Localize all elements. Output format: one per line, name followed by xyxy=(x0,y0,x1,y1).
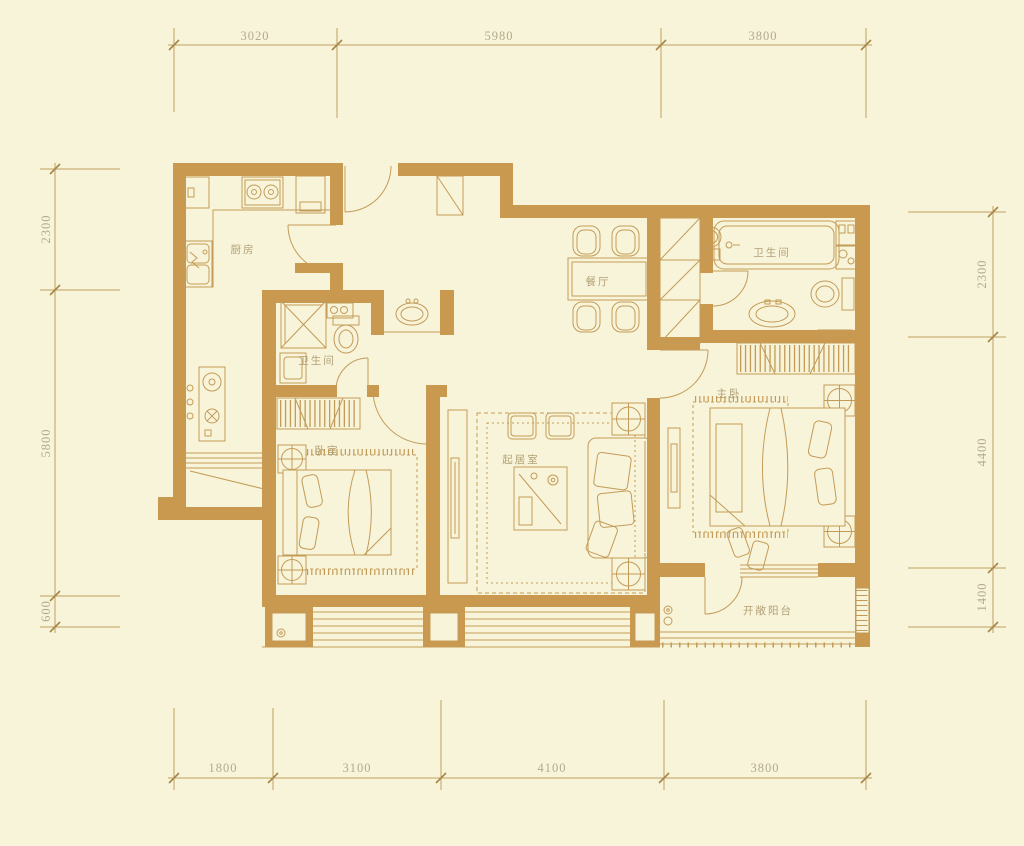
floor-plan-page: 3020 5980 3800 1800 3100 4100 3800 2300 … xyxy=(0,0,1024,846)
dim-right-2: 4400 xyxy=(975,438,989,467)
dim-left-2: 5800 xyxy=(39,429,53,458)
dim-bottom-2: 3100 xyxy=(343,761,372,775)
room-label-living: 起居室 xyxy=(502,453,540,466)
dim-right-3: 1400 xyxy=(975,583,989,612)
balcony-furniture xyxy=(664,606,672,625)
walls-layer xyxy=(158,163,870,647)
bath-master-furniture xyxy=(701,221,856,336)
room-label-master: 主卧 xyxy=(717,387,742,400)
dim-bottom-1: 1800 xyxy=(209,761,238,775)
bedroom-furniture xyxy=(277,398,391,584)
bath-middle-furniture xyxy=(280,176,463,383)
dim-left-3: 600 xyxy=(39,600,53,622)
dim-top-1: 3020 xyxy=(241,29,270,43)
room-label-bath-master: 卫生间 xyxy=(753,246,791,259)
dim-top-3: 3800 xyxy=(749,29,778,43)
dim-bottom-4: 3800 xyxy=(751,761,780,775)
hall-closet xyxy=(660,218,700,343)
room-label-balcony: 开敞阳台 xyxy=(743,604,793,617)
dim-top-2: 5980 xyxy=(485,29,514,43)
room-label-bedroom: 卧室 xyxy=(315,444,340,457)
living-furniture xyxy=(448,403,652,590)
room-label-bath-middle: 卫生间 xyxy=(298,354,336,367)
room-label-dining: 餐厅 xyxy=(586,275,611,288)
dim-bottom-3: 4100 xyxy=(538,761,567,775)
room-label-kitchen: 厨房 xyxy=(231,243,256,256)
utility-furniture xyxy=(187,367,225,441)
dim-left-1: 2300 xyxy=(39,215,53,244)
dim-right-1: 2300 xyxy=(975,260,989,289)
floor-plan-canvas: 3020 5980 3800 1800 3100 4100 3800 2300 … xyxy=(0,0,1024,846)
